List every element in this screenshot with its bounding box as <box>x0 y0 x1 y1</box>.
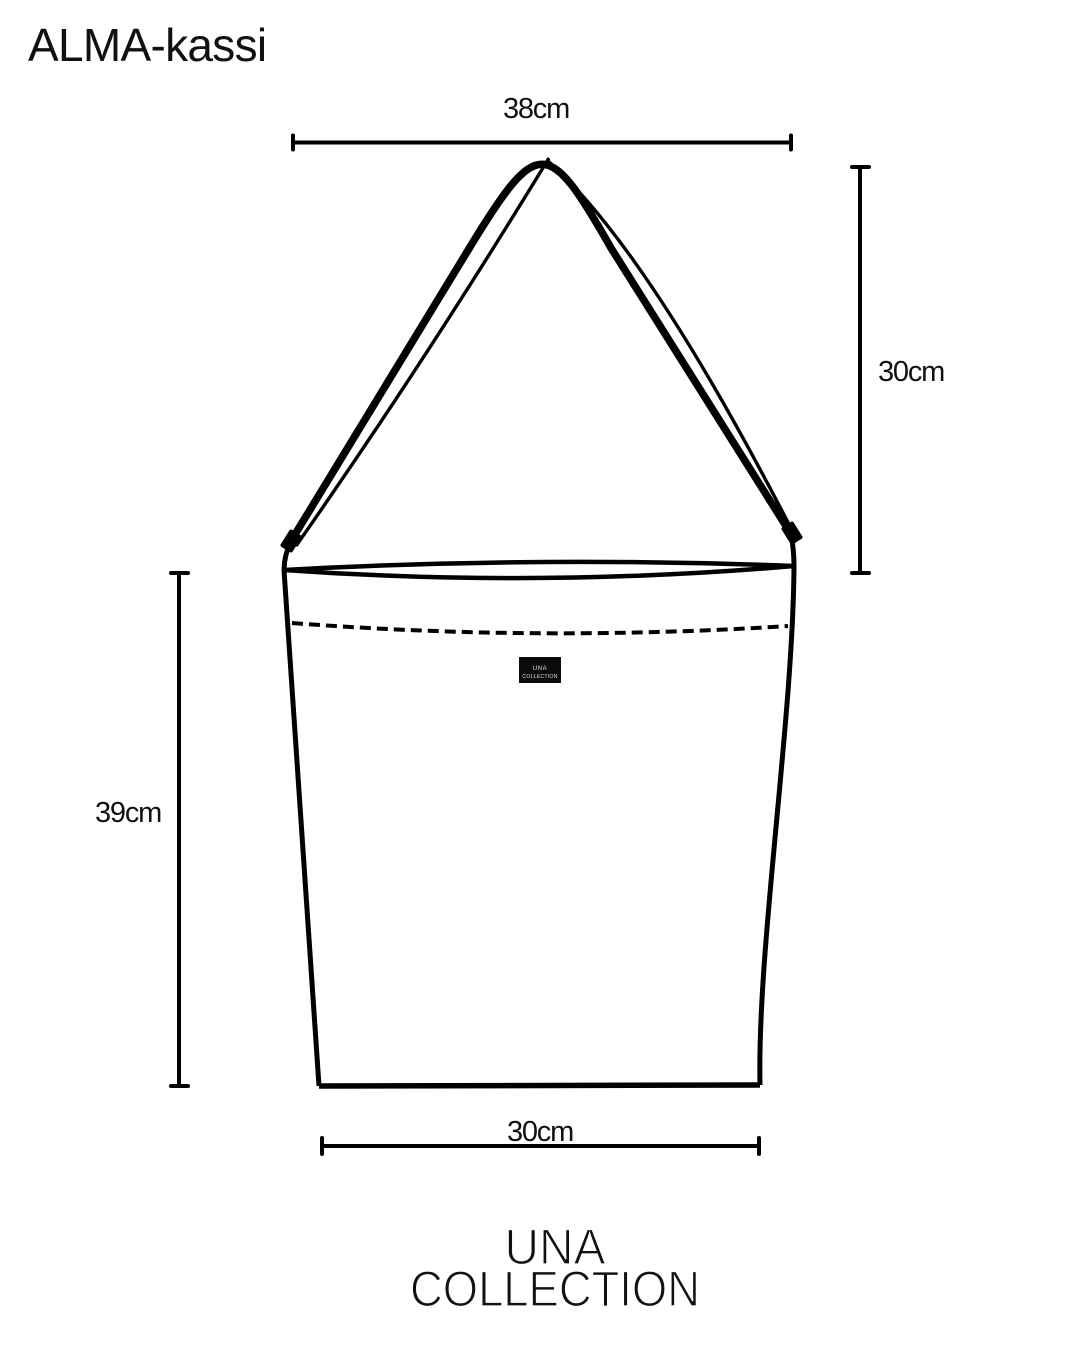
svg-text:COLLECTION: COLLECTION <box>410 1261 700 1317</box>
svg-text:UNA: UNA <box>533 666 547 672</box>
svg-text:39cm: 39cm <box>95 797 161 829</box>
svg-text:COLLECTION: COLLECTION <box>522 674 557 680</box>
svg-text:ALMA-kassi: ALMA-kassi <box>28 19 266 71</box>
svg-text:30cm: 30cm <box>878 356 944 388</box>
svg-text:30cm: 30cm <box>507 1116 573 1148</box>
svg-text:38cm: 38cm <box>503 93 569 125</box>
